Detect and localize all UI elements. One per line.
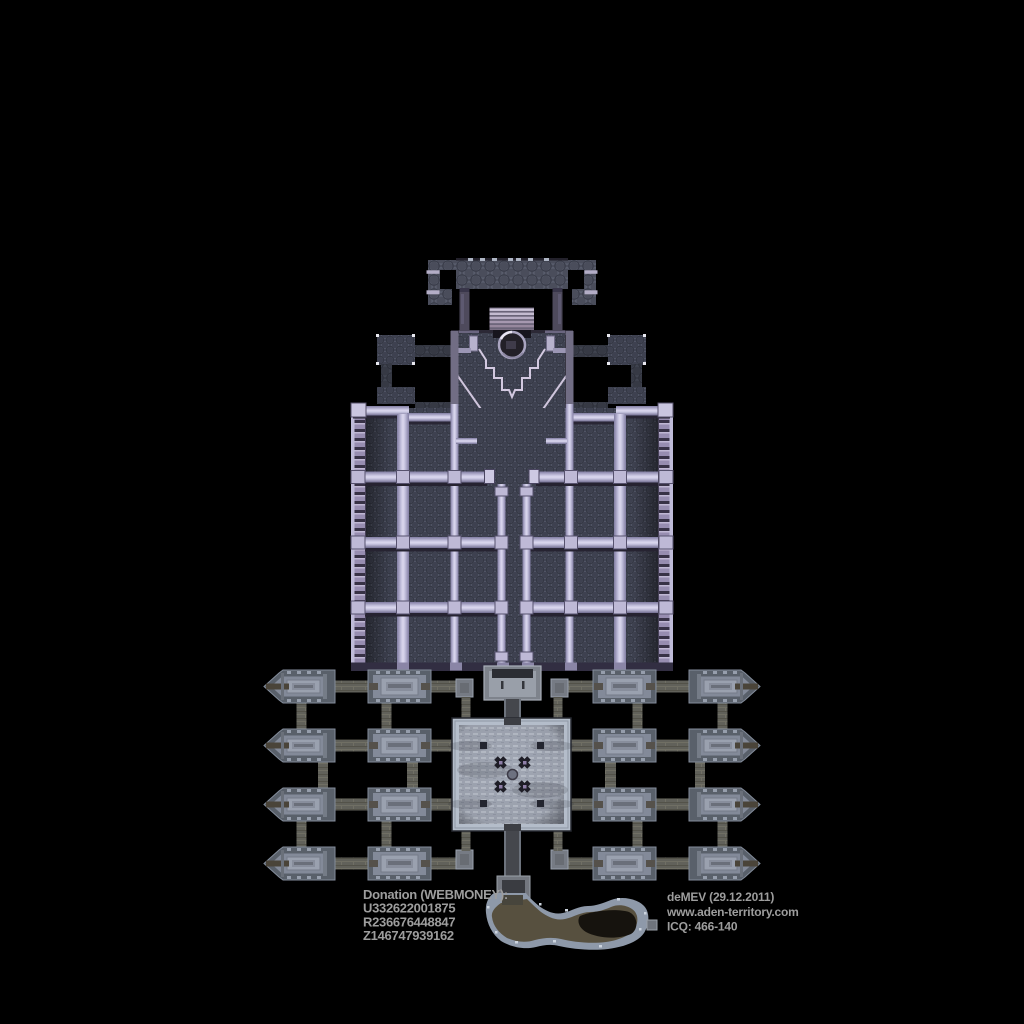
svg-text:deMEV (29.12.2011): deMEV (29.12.2011) bbox=[667, 890, 774, 904]
svg-text:ICQ: 466-140: ICQ: 466-140 bbox=[667, 920, 738, 934]
svg-text:Z146747939162: Z146747939162 bbox=[363, 928, 454, 943]
svg-text:www.aden-territory.com: www.aden-territory.com bbox=[666, 905, 799, 919]
